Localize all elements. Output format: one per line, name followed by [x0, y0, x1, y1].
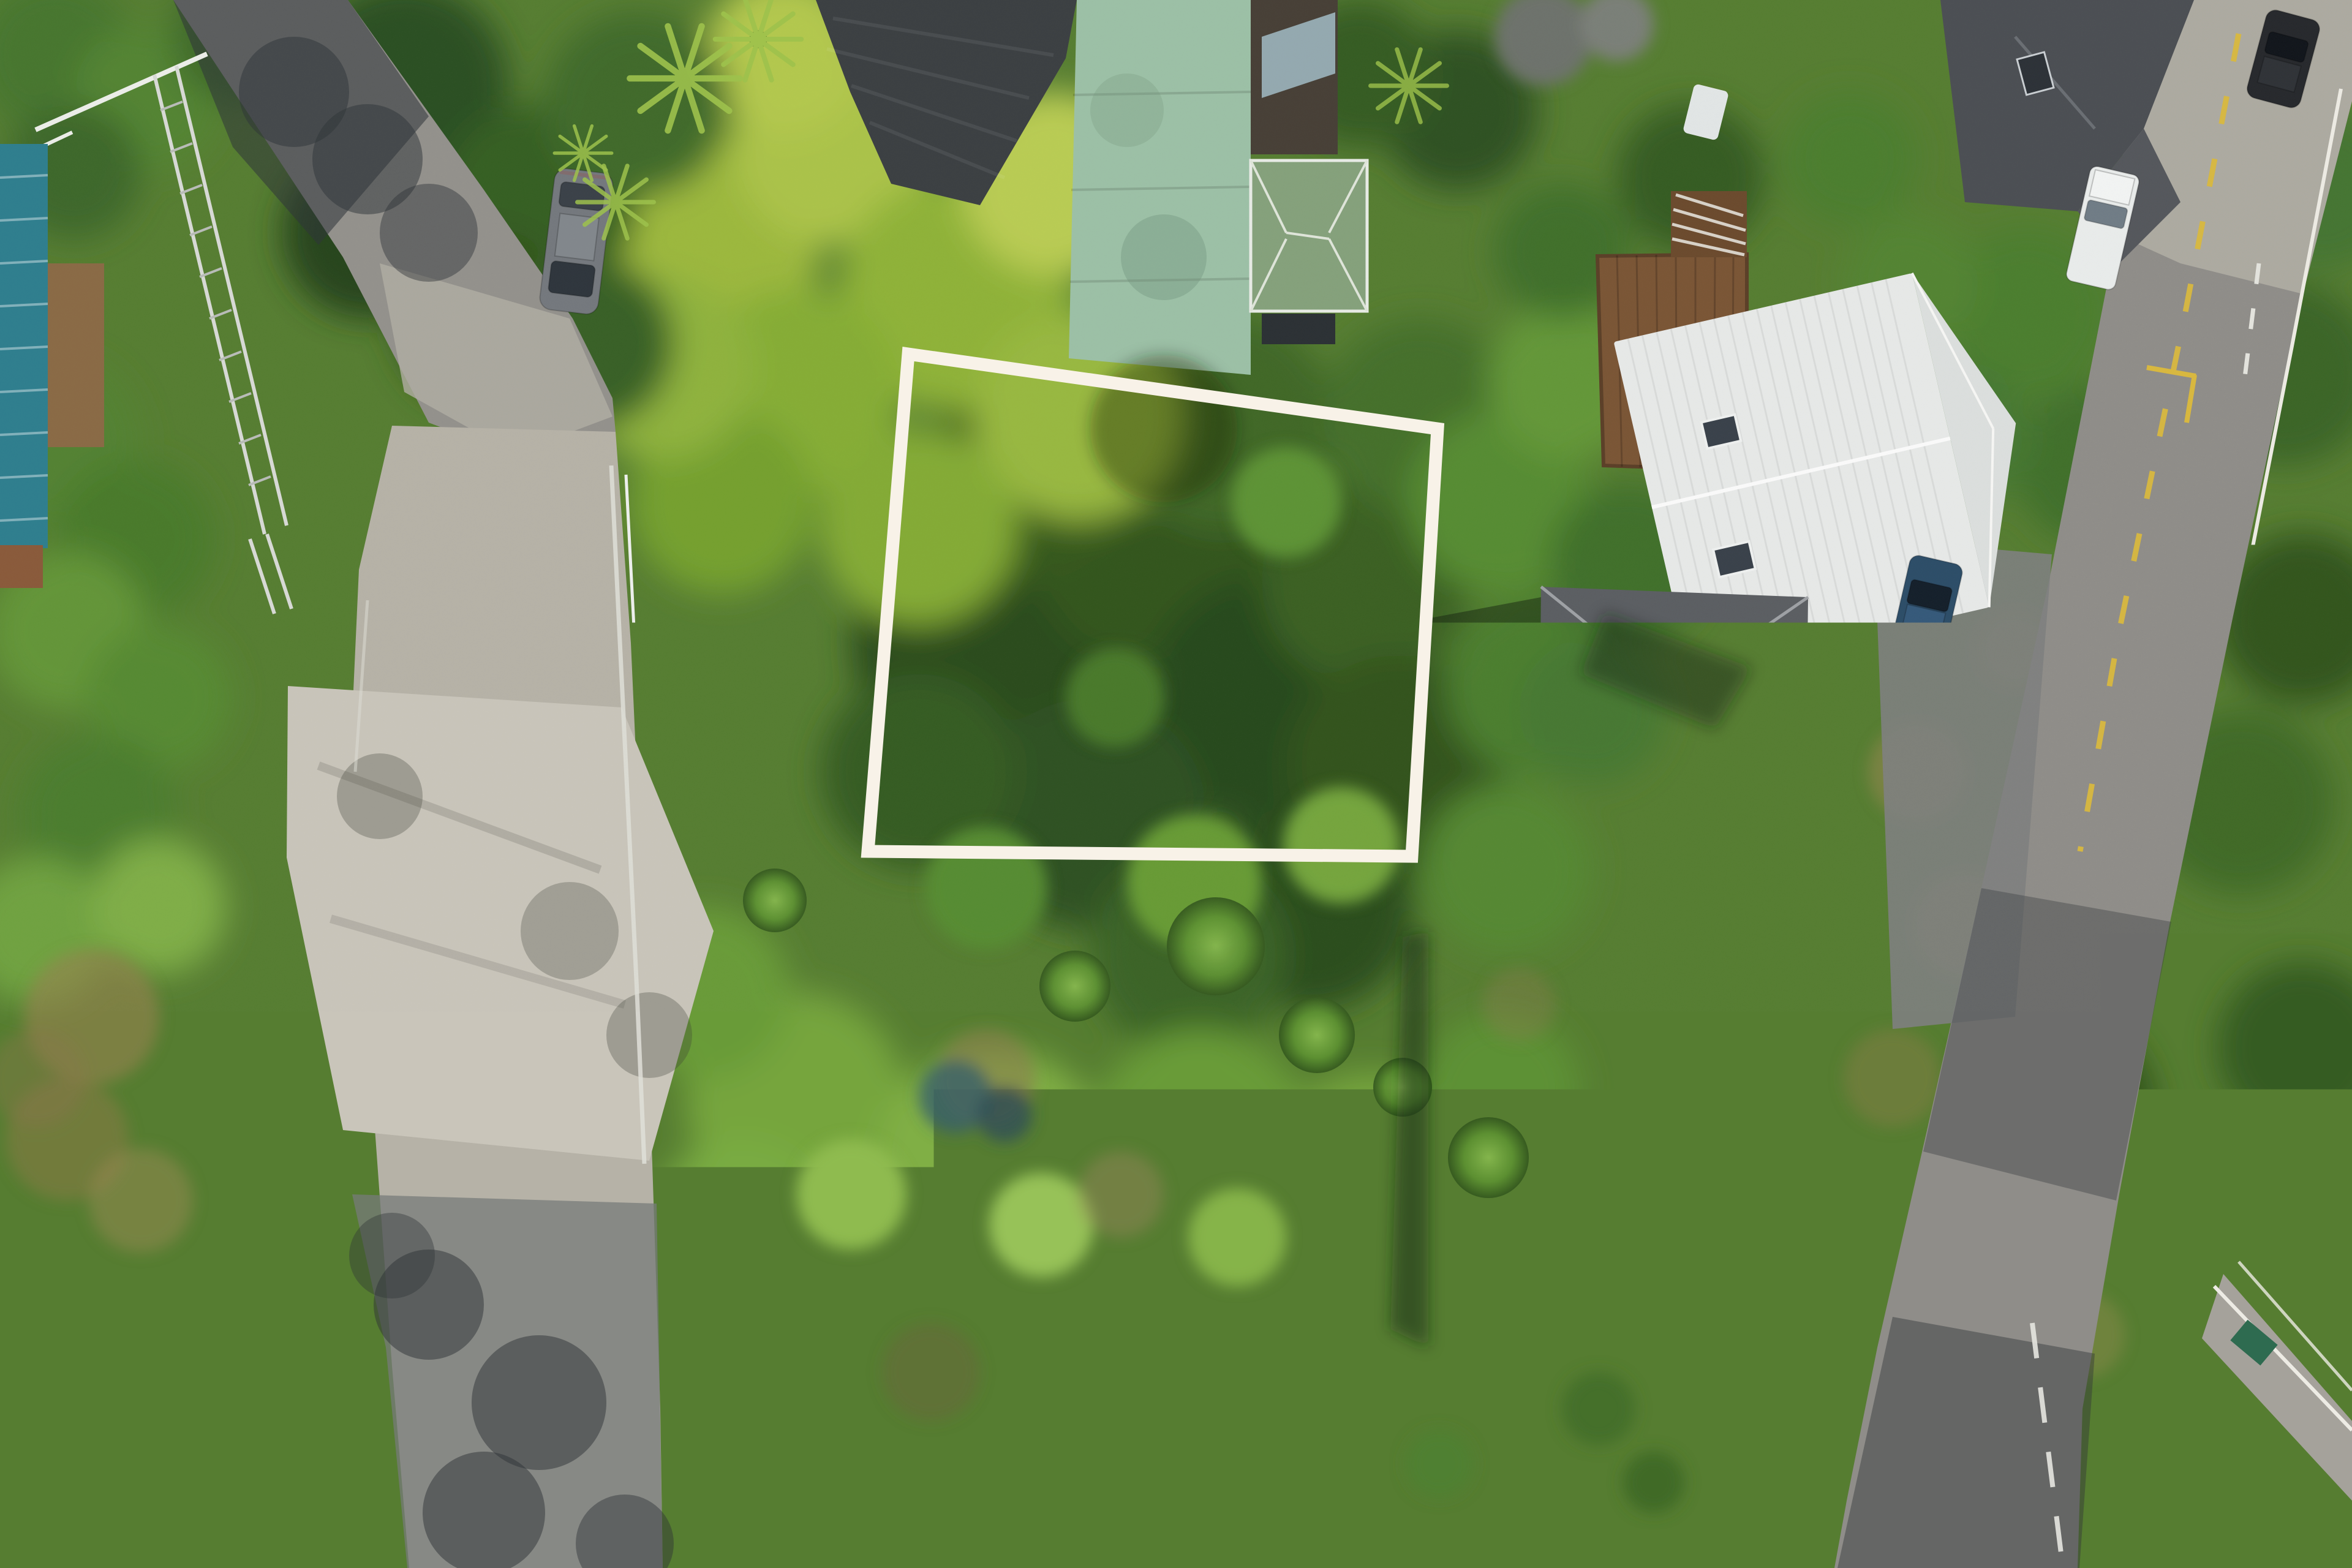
aerial-photo-canvas: Indicative Boundary Line	[0, 0, 2352, 1568]
boundary-label: Indicative Boundary Line	[631, 1240, 1254, 1294]
aerial-photo: Indicative Boundary Line	[0, 0, 2352, 1568]
photo-grain	[0, 0, 2352, 1568]
